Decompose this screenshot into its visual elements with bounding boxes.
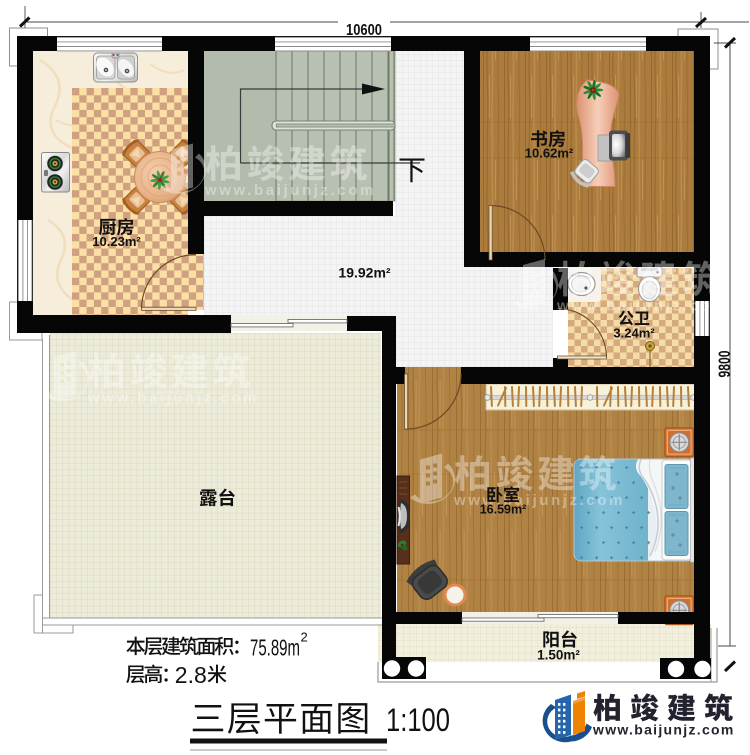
svg-text:1.50m²: 1.50m² [537,648,580,663]
svg-text:75.89m: 75.89m [250,635,300,661]
svg-text:10.62m²: 10.62m² [525,146,574,161]
svg-text:www.baijunjz.com: www.baijunjz.com [87,390,259,407]
svg-text:www.baijunjz.com: www.baijunjz.com [592,722,735,738]
svg-text:16.59m²: 16.59m² [480,503,527,517]
svg-text:10600: 10600 [346,22,382,39]
svg-text:1:100: 1:100 [386,702,450,738]
svg-text:2.8: 2.8 [175,662,207,688]
svg-text:10.23m²: 10.23m² [92,234,141,249]
svg-text:19.92m²: 19.92m² [338,265,390,281]
svg-text:9800: 9800 [716,351,734,378]
svg-text:www.baijunjz.com: www.baijunjz.com [204,182,376,199]
svg-text:3.24m²: 3.24m² [613,326,655,341]
svg-text:2: 2 [301,630,308,645]
